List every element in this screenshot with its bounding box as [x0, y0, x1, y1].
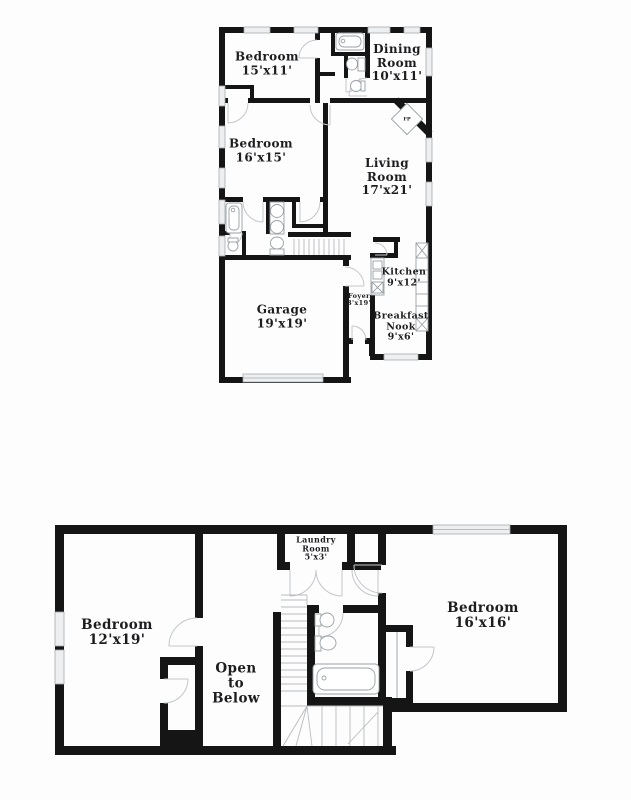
floorplan-page: Bedroom15'x11' DiningRoom10'x11' Bedroom… — [0, 0, 631, 800]
room-label-breakfast-nook: BreakfastNook9'x6' — [373, 311, 428, 343]
room-label-laundry-room: LaundryRoom5'x3' — [296, 535, 336, 561]
room-label-foyer: Foyer3'x19' — [347, 293, 371, 307]
room-label-bedroom-16x15: Bedroom16'x15' — [229, 138, 293, 165]
first-floor-stairs — [294, 239, 344, 255]
room-label-dining-room: DiningRoom10'x11' — [372, 43, 423, 84]
room-label-garage: Garage19'x19' — [257, 304, 308, 331]
sink — [351, 81, 362, 92]
room-label-open-to-below: OpentoBelow — [212, 662, 260, 707]
second-floor-doors — [164, 565, 434, 703]
room-label-bedroom-12x19: Bedroom12'x19' — [81, 618, 153, 648]
powder-sink — [228, 241, 238, 251]
toilet — [358, 58, 365, 71]
floorplan-canvas — [0, 0, 631, 800]
master-toilet — [271, 237, 284, 249]
room-label-kitchen: Kitchen9'x12' — [382, 268, 427, 289]
fireplace-label: FP — [403, 118, 410, 123]
room-label-living-room: LivingRoom17'x21' — [362, 157, 413, 198]
room-label-bedroom-15x11: Bedroom15'x11' — [235, 51, 299, 78]
room-label-bedroom-16x16: Bedroom16'x16' — [447, 601, 519, 631]
